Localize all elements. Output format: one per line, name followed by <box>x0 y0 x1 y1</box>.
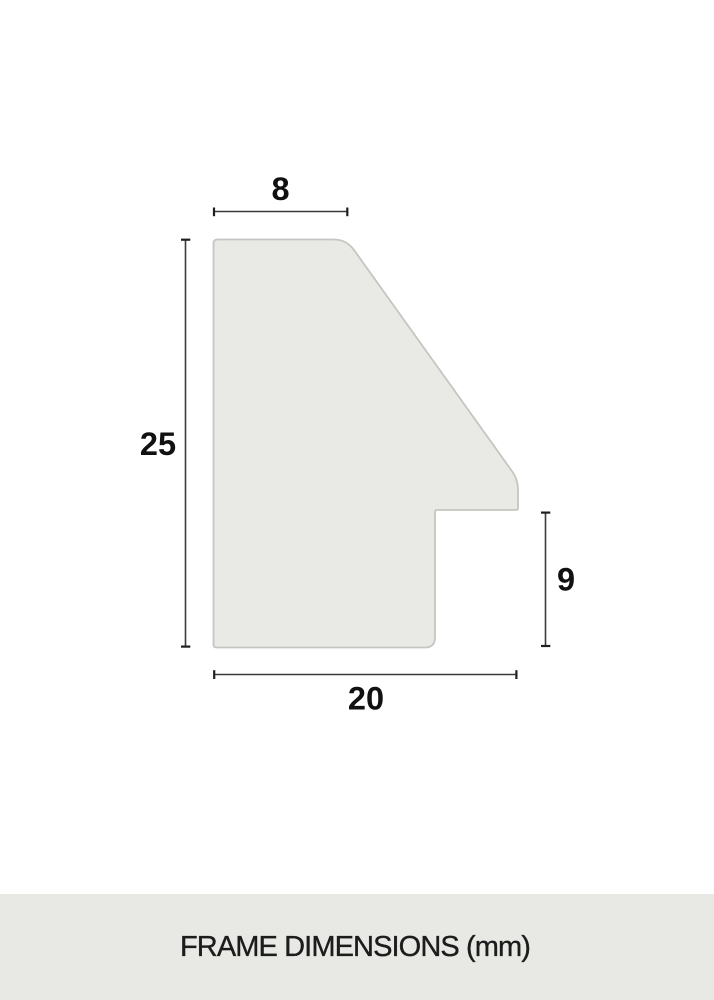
svg-text:8: 8 <box>271 171 289 207</box>
svg-text:9: 9 <box>557 562 575 598</box>
svg-text:25: 25 <box>140 426 176 462</box>
svg-text:20: 20 <box>348 680 384 716</box>
